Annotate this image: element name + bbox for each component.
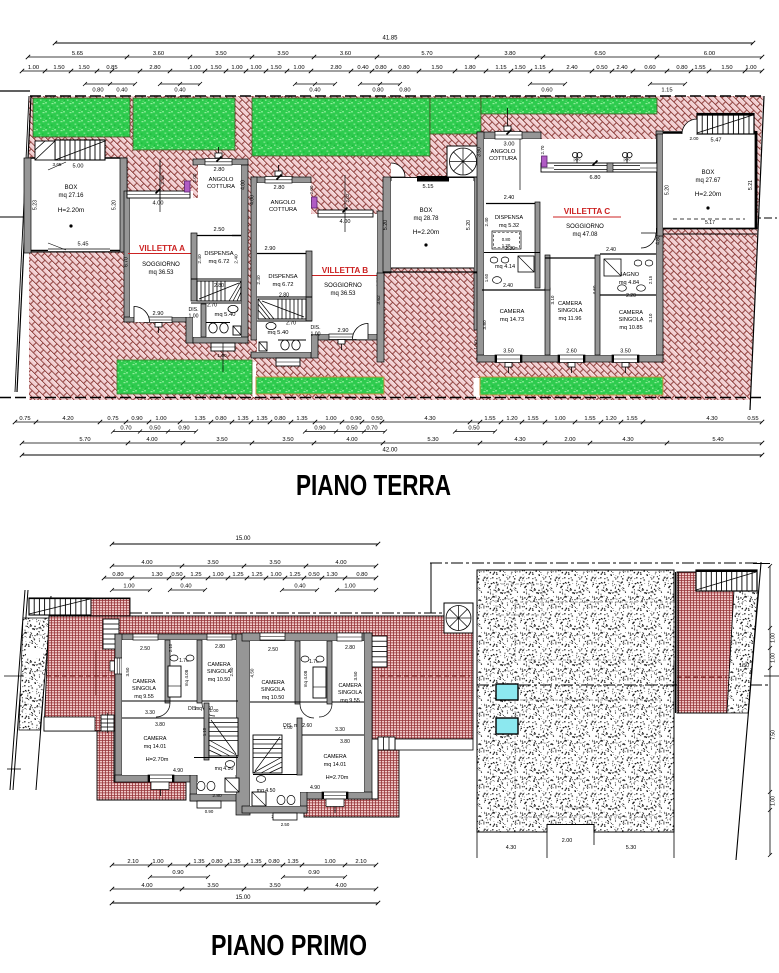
svg-text:1.35: 1.35: [194, 416, 205, 422]
svg-text:2.00: 2.00: [562, 838, 573, 844]
svg-text:0.70: 0.70: [120, 426, 131, 432]
svg-text:1.50: 1.50: [270, 65, 281, 71]
svg-text:2.40: 2.40: [484, 217, 489, 226]
svg-text:1.15: 1.15: [661, 88, 672, 94]
svg-text:BOX: BOX: [702, 170, 715, 176]
svg-text:2.40: 2.40: [606, 247, 616, 253]
svg-text:4.30: 4.30: [514, 437, 525, 443]
svg-text:BOX: BOX: [420, 208, 433, 214]
svg-text:3.50: 3.50: [216, 437, 227, 443]
svg-text:2.10: 2.10: [355, 859, 366, 865]
svg-text:2.50: 2.50: [214, 227, 225, 233]
svg-text:mq 36.53: mq 36.53: [330, 291, 356, 297]
svg-text:1.00: 1.00: [771, 653, 777, 663]
svg-text:mq 27.16: mq 27.16: [58, 193, 84, 199]
svg-text:2.40: 2.40: [566, 65, 577, 71]
svg-text:6.50: 6.50: [594, 51, 605, 57]
svg-text:2.00: 2.00: [564, 437, 575, 443]
svg-text:BAGNO: BAGNO: [619, 272, 640, 278]
svg-text:1.10: 1.10: [202, 727, 207, 736]
svg-text:3.30: 3.30: [145, 710, 155, 716]
svg-text:2.40: 2.40: [234, 254, 240, 264]
svg-text:4.30: 4.30: [622, 437, 633, 443]
svg-text:0.40: 0.40: [174, 88, 185, 94]
svg-text:CAMERA: CAMERA: [500, 309, 525, 315]
svg-text:H=2.20m: H=2.20m: [58, 207, 85, 214]
svg-text:4.20: 4.20: [62, 416, 73, 422]
svg-text:ANGOLO: ANGOLO: [271, 200, 296, 206]
svg-text:2.90: 2.90: [338, 328, 349, 334]
svg-text:CAMERA: CAMERA: [323, 754, 346, 760]
svg-text:2.90: 2.90: [153, 311, 164, 317]
svg-text:2.80: 2.80: [215, 644, 225, 650]
svg-text:2.50: 2.50: [281, 822, 290, 827]
svg-text:5.65: 5.65: [72, 51, 83, 57]
svg-text:4.00: 4.00: [146, 437, 157, 443]
svg-text:0.80: 0.80: [356, 572, 367, 578]
svg-text:0.55: 0.55: [747, 416, 758, 422]
svg-text:1.50: 1.50: [78, 65, 89, 71]
svg-text:5.40: 5.40: [712, 437, 723, 443]
svg-text:2.00: 2.00: [690, 136, 699, 141]
svg-text:0.40: 0.40: [180, 584, 191, 590]
svg-text:0.40: 0.40: [357, 65, 368, 71]
svg-text:mq 14.01: mq 14.01: [144, 744, 166, 750]
svg-text:0.80: 0.80: [268, 859, 279, 865]
svg-text:4.30: 4.30: [706, 416, 717, 422]
svg-text:1.00: 1.00: [325, 416, 336, 422]
svg-text:COTTURA: COTTURA: [207, 184, 235, 190]
svg-text:1.35: 1.35: [237, 416, 248, 422]
svg-text:3.50: 3.50: [207, 560, 218, 566]
svg-text:5.20: 5.20: [383, 220, 389, 230]
svg-text:1.00: 1.00: [189, 65, 200, 71]
svg-text:1.35: 1.35: [296, 416, 307, 422]
svg-text:mq 6.72: mq 6.72: [209, 259, 230, 265]
svg-text:1.25: 1.25: [289, 572, 300, 578]
svg-text:0.80: 0.80: [676, 65, 687, 71]
svg-text:5.17: 5.17: [705, 220, 715, 226]
svg-text:2.80: 2.80: [214, 283, 224, 289]
svg-text:1.55: 1.55: [694, 65, 705, 71]
svg-text:mq 10.85: mq 10.85: [619, 325, 642, 331]
svg-text:SINGOLA: SINGOLA: [207, 669, 231, 675]
svg-text:1.20: 1.20: [506, 416, 517, 422]
svg-text:1.25: 1.25: [251, 572, 262, 578]
svg-text:1.55: 1.55: [584, 416, 595, 422]
svg-text:mq 36.53: mq 36.53: [148, 270, 174, 276]
svg-text:3.90: 3.90: [477, 147, 483, 157]
svg-text:3.60: 3.60: [153, 51, 164, 57]
svg-text:mq 27.67: mq 27.67: [695, 178, 721, 184]
svg-text:1.50: 1.50: [431, 65, 442, 71]
svg-text:CAMERA: CAMERA: [261, 680, 284, 686]
svg-text:4.50: 4.50: [250, 668, 255, 677]
svg-text:1.15: 1.15: [495, 65, 506, 71]
svg-text:mq 4.08: mq 4.08: [303, 670, 308, 687]
svg-text:BOX: BOX: [65, 185, 78, 191]
svg-text:1.35: 1.35: [287, 859, 298, 865]
svg-text:0.40: 0.40: [116, 88, 127, 94]
svg-text:1.00: 1.00: [344, 584, 355, 590]
svg-text:1.00: 1.00: [28, 65, 39, 71]
svg-text:3.50: 3.50: [269, 560, 280, 566]
svg-text:H=2.20m: H=2.20m: [413, 229, 440, 236]
svg-text:1.50: 1.50: [210, 65, 221, 71]
svg-text:5.00: 5.00: [73, 164, 84, 170]
svg-text:0.50: 0.50: [468, 426, 479, 432]
svg-text:3.60: 3.60: [340, 51, 351, 57]
svg-text:CAMERA: CAMERA: [207, 662, 230, 668]
svg-text:0.50: 0.50: [596, 65, 607, 71]
svg-text:0.75: 0.75: [19, 416, 30, 422]
svg-text:2.80: 2.80: [212, 793, 222, 799]
svg-text:0.80: 0.80: [372, 88, 383, 94]
svg-text:1.15: 1.15: [534, 65, 545, 71]
svg-text:mq 4.14: mq 4.14: [495, 264, 515, 270]
svg-text:COTTURA: COTTURA: [269, 207, 297, 213]
svg-text:3.00: 3.00: [504, 142, 515, 148]
svg-text:0.50: 0.50: [308, 572, 319, 578]
svg-text:3.10: 3.10: [550, 295, 555, 304]
svg-text:1.00: 1.00: [123, 584, 134, 590]
svg-text:5.20: 5.20: [466, 220, 472, 230]
svg-text:15.00: 15.00: [235, 536, 251, 542]
svg-text:PIANO PRIMO: PIANO PRIMO: [211, 930, 367, 962]
svg-text:0.50: 0.50: [171, 572, 182, 578]
svg-text:1.50: 1.50: [721, 65, 732, 71]
svg-text:1.00: 1.00: [745, 65, 756, 71]
svg-text:5.20: 5.20: [112, 200, 118, 210]
svg-text:3.50: 3.50: [277, 51, 288, 57]
svg-text:2.50: 2.50: [229, 667, 234, 676]
svg-text:5.45: 5.45: [78, 242, 89, 248]
svg-text:1.30: 1.30: [326, 572, 337, 578]
svg-text:1.35: 1.35: [250, 859, 261, 865]
svg-text:1.00: 1.00: [188, 314, 198, 320]
svg-text:mq 10.50: mq 10.50: [262, 695, 284, 701]
svg-text:3.50: 3.50: [353, 671, 358, 680]
svg-text:1.50: 1.50: [53, 65, 64, 71]
svg-text:0.40: 0.40: [309, 88, 320, 94]
svg-text:2.40: 2.40: [197, 254, 203, 264]
svg-text:1.60: 1.60: [484, 273, 489, 282]
svg-text:2.80: 2.80: [330, 65, 341, 71]
svg-text:3.80: 3.80: [504, 51, 515, 57]
svg-text:VILLETTA B: VILLETTA B: [322, 266, 368, 275]
svg-text:1.00: 1.00: [324, 859, 335, 865]
svg-text:4.00: 4.00: [241, 180, 247, 190]
svg-text:mq 11.96: mq 11.96: [559, 316, 582, 322]
svg-text:VILLETTA C: VILLETTA C: [564, 207, 610, 216]
svg-text:0.60: 0.60: [644, 65, 655, 71]
svg-text:2.40: 2.40: [504, 195, 515, 201]
svg-text:mq 5.32: mq 5.32: [499, 223, 519, 229]
svg-text:0.80: 0.80: [375, 65, 386, 71]
svg-text:3.50: 3.50: [207, 883, 218, 889]
svg-text:0.40: 0.40: [294, 584, 305, 590]
svg-text:0.90: 0.90: [350, 416, 361, 422]
svg-text:6.70: 6.70: [124, 257, 130, 267]
svg-text:3.80: 3.80: [482, 320, 488, 330]
svg-text:42.00: 42.00: [382, 448, 398, 454]
svg-text:VILLETTA A: VILLETTA A: [139, 244, 185, 253]
svg-text:COTTURA: COTTURA: [489, 156, 517, 162]
svg-text:2.02: 2.02: [345, 193, 350, 202]
svg-text:5.23: 5.23: [33, 200, 39, 210]
svg-text:pero: pero: [624, 158, 631, 162]
svg-text:4.00: 4.00: [335, 560, 346, 566]
svg-text:2.00: 2.00: [192, 173, 197, 182]
svg-text:mq 6.72: mq 6.72: [273, 282, 294, 288]
svg-text:1.55: 1.55: [626, 416, 637, 422]
svg-text:2.10: 2.10: [127, 859, 138, 865]
svg-text:3.50: 3.50: [503, 349, 514, 355]
svg-text:1.00: 1.00: [210, 708, 219, 713]
svg-text:0.80: 0.80: [92, 88, 103, 94]
svg-text:SINGOLA: SINGOLA: [132, 686, 156, 692]
svg-text:1.35: 1.35: [193, 859, 204, 865]
svg-text:1.25: 1.25: [232, 572, 243, 578]
svg-text:2.80: 2.80: [149, 65, 160, 71]
svg-text:3.30: 3.30: [335, 727, 345, 733]
svg-text:0.85: 0.85: [106, 65, 117, 71]
svg-text:4.30: 4.30: [424, 416, 435, 422]
svg-text:1.50: 1.50: [514, 65, 525, 71]
svg-text:mq 47.08: mq 47.08: [572, 232, 598, 238]
svg-text:0.90: 0.90: [314, 426, 325, 432]
svg-text:CAMERA: CAMERA: [143, 736, 166, 742]
svg-text:4.90: 4.90: [173, 768, 183, 774]
svg-text:mq 10.50: mq 10.50: [208, 677, 230, 683]
svg-text:PIANO TERRA: PIANO TERRA: [296, 470, 451, 502]
svg-text:3.50: 3.50: [282, 437, 293, 443]
svg-text:4.00: 4.00: [141, 560, 152, 566]
svg-text:1.00: 1.00: [250, 65, 261, 71]
svg-text:5.20: 5.20: [665, 185, 671, 195]
svg-text:pero: pero: [574, 158, 581, 162]
svg-text:2.10: 2.10: [168, 643, 173, 652]
svg-text:3.10: 3.10: [648, 313, 653, 322]
svg-text:CAMERA: CAMERA: [558, 301, 582, 307]
svg-text:41.85: 41.85: [382, 36, 398, 42]
svg-text:1.00: 1.00: [771, 796, 777, 806]
svg-text:7.50: 7.50: [771, 730, 777, 740]
svg-text:3.50: 3.50: [269, 883, 280, 889]
svg-text:1.00: 1.00: [293, 65, 304, 71]
svg-text:SINGOLA: SINGOLA: [338, 690, 362, 696]
svg-text:SINGOLA: SINGOLA: [261, 687, 285, 693]
svg-text:mq 9.55: mq 9.55: [134, 694, 153, 700]
svg-text:1.00: 1.00: [152, 859, 163, 865]
svg-text:0.60: 0.60: [541, 88, 552, 94]
svg-text:2.20: 2.20: [626, 293, 636, 299]
svg-text:1.55: 1.55: [527, 416, 538, 422]
svg-text:5.30: 5.30: [427, 437, 438, 443]
svg-text:0.90: 0.90: [172, 870, 183, 876]
svg-text:3.80: 3.80: [340, 739, 350, 745]
svg-text:2.70: 2.70: [540, 145, 545, 154]
svg-text:0.90: 0.90: [205, 809, 214, 814]
svg-text:3.62: 3.62: [376, 295, 382, 305]
svg-text:2.40: 2.40: [503, 283, 513, 289]
svg-text:1.00: 1.00: [771, 633, 777, 643]
svg-text:ANGOLO: ANGOLO: [491, 149, 516, 155]
svg-text:4.90: 4.90: [310, 785, 320, 791]
svg-text:5.30: 5.30: [626, 845, 637, 851]
svg-text:mq 5.40: mq 5.40: [268, 330, 289, 336]
svg-text:CAMERA: CAMERA: [619, 310, 643, 316]
svg-text:ANGOLO: ANGOLO: [209, 177, 234, 183]
svg-text:DIS.: DIS.: [188, 307, 198, 313]
svg-text:0.80: 0.80: [112, 572, 123, 578]
svg-text:0.70: 0.70: [366, 426, 377, 432]
svg-text:5.21: 5.21: [748, 180, 754, 190]
svg-text:DISPENSA: DISPENSA: [495, 215, 524, 221]
svg-text:1.50: 1.50: [739, 663, 749, 669]
svg-text:1.30: 1.30: [151, 572, 162, 578]
svg-text:1.25: 1.25: [190, 572, 201, 578]
svg-text:1.55: 1.55: [484, 416, 495, 422]
svg-text:1.00: 1.00: [212, 572, 223, 578]
svg-text:4.00: 4.00: [346, 437, 357, 443]
svg-text:SINGOLA: SINGOLA: [619, 317, 644, 323]
svg-text:4.30: 4.30: [506, 845, 517, 851]
svg-text:1.00: 1.00: [284, 725, 293, 730]
svg-text:DIS.: DIS.: [310, 325, 320, 331]
svg-text:H=2.70m: H=2.70m: [326, 775, 349, 781]
svg-text:6.00: 6.00: [704, 51, 715, 57]
svg-text:1.00: 1.00: [554, 416, 565, 422]
svg-text:SOGGIORNO: SOGGIORNO: [324, 283, 362, 289]
svg-text:1.00: 1.00: [155, 416, 166, 422]
svg-text:mq 28.78: mq 28.78: [413, 216, 439, 222]
svg-text:2.40: 2.40: [616, 65, 627, 71]
svg-text:0.75: 0.75: [107, 416, 118, 422]
svg-text:1.00: 1.00: [231, 65, 242, 71]
svg-text:SINGOLA: SINGOLA: [558, 308, 583, 314]
svg-text:3.50: 3.50: [125, 667, 130, 676]
svg-text:CAMERA: CAMERA: [338, 683, 361, 689]
svg-text:0.90: 0.90: [308, 870, 319, 876]
svg-text:2.80: 2.80: [279, 293, 289, 299]
svg-text:15.00: 15.00: [235, 895, 251, 901]
svg-text:6.80: 6.80: [590, 175, 601, 181]
svg-text:0.80: 0.80: [398, 65, 409, 71]
svg-text:H=2.70m: H=2.70m: [146, 757, 169, 763]
svg-text:1.00: 1.00: [217, 353, 227, 359]
svg-text:2.46: 2.46: [160, 175, 166, 185]
svg-text:2.30: 2.30: [505, 246, 515, 252]
svg-text:3.80: 3.80: [155, 722, 165, 728]
svg-text:0.80: 0.80: [274, 416, 285, 422]
svg-text:SOGGIORNO: SOGGIORNO: [142, 262, 180, 268]
svg-text:1.00: 1.00: [310, 332, 320, 338]
svg-text:4.00: 4.00: [141, 883, 152, 889]
svg-text:4.00: 4.00: [250, 195, 256, 205]
svg-text:H=2.20m: H=2.20m: [695, 191, 722, 198]
svg-text:5.70: 5.70: [79, 437, 90, 443]
svg-text:0.50: 0.50: [371, 416, 382, 422]
svg-text:5.70: 5.70: [421, 51, 432, 57]
svg-text:5.15: 5.15: [423, 184, 434, 190]
svg-text:0.90: 0.90: [178, 426, 189, 432]
svg-text:DISPENSA: DISPENSA: [268, 274, 297, 280]
svg-text:1.00: 1.00: [270, 572, 281, 578]
svg-text:1.35: 1.35: [229, 859, 240, 865]
svg-text:2.15: 2.15: [648, 275, 653, 284]
svg-text:2.00: 2.00: [309, 185, 314, 194]
svg-text:0.80: 0.80: [211, 859, 222, 865]
svg-text:1.35: 1.35: [256, 416, 267, 422]
svg-text:2.50: 2.50: [268, 647, 278, 653]
svg-text:3.50: 3.50: [620, 349, 631, 355]
svg-text:mq 14.73: mq 14.73: [500, 317, 524, 323]
svg-text:mq 9.55: mq 9.55: [340, 698, 359, 704]
svg-text:2.60: 2.60: [566, 349, 577, 355]
svg-text:SOGGIORNO: SOGGIORNO: [566, 224, 604, 230]
svg-text:2.80: 2.80: [214, 167, 225, 173]
svg-text:1.20: 1.20: [605, 416, 616, 422]
svg-text:2.80: 2.80: [345, 645, 355, 651]
svg-text:2.80: 2.80: [274, 185, 285, 191]
svg-text:CAMERA: CAMERA: [132, 679, 155, 685]
svg-text:0.80: 0.80: [399, 88, 410, 94]
svg-text:2.40: 2.40: [256, 275, 262, 285]
svg-text:0.80: 0.80: [502, 237, 511, 242]
svg-text:4.00: 4.00: [335, 883, 346, 889]
svg-text:0.80: 0.80: [215, 416, 226, 422]
svg-text:mq 4.08: mq 4.08: [184, 669, 189, 686]
svg-text:2.50: 2.50: [140, 646, 150, 652]
svg-text:DISPENSA: DISPENSA: [204, 251, 233, 257]
svg-text:mq 14.01: mq 14.01: [324, 762, 346, 768]
svg-text:2.90: 2.90: [265, 246, 276, 252]
svg-text:4.80: 4.80: [656, 235, 662, 245]
svg-text:4.00: 4.00: [153, 201, 164, 207]
svg-text:1.80: 1.80: [464, 65, 475, 71]
svg-text:0.50: 0.50: [346, 426, 357, 432]
svg-text:0.90: 0.90: [131, 416, 142, 422]
svg-text:3.50: 3.50: [215, 51, 226, 57]
svg-text:5.47: 5.47: [711, 138, 722, 144]
svg-text:0.50: 0.50: [149, 426, 160, 432]
